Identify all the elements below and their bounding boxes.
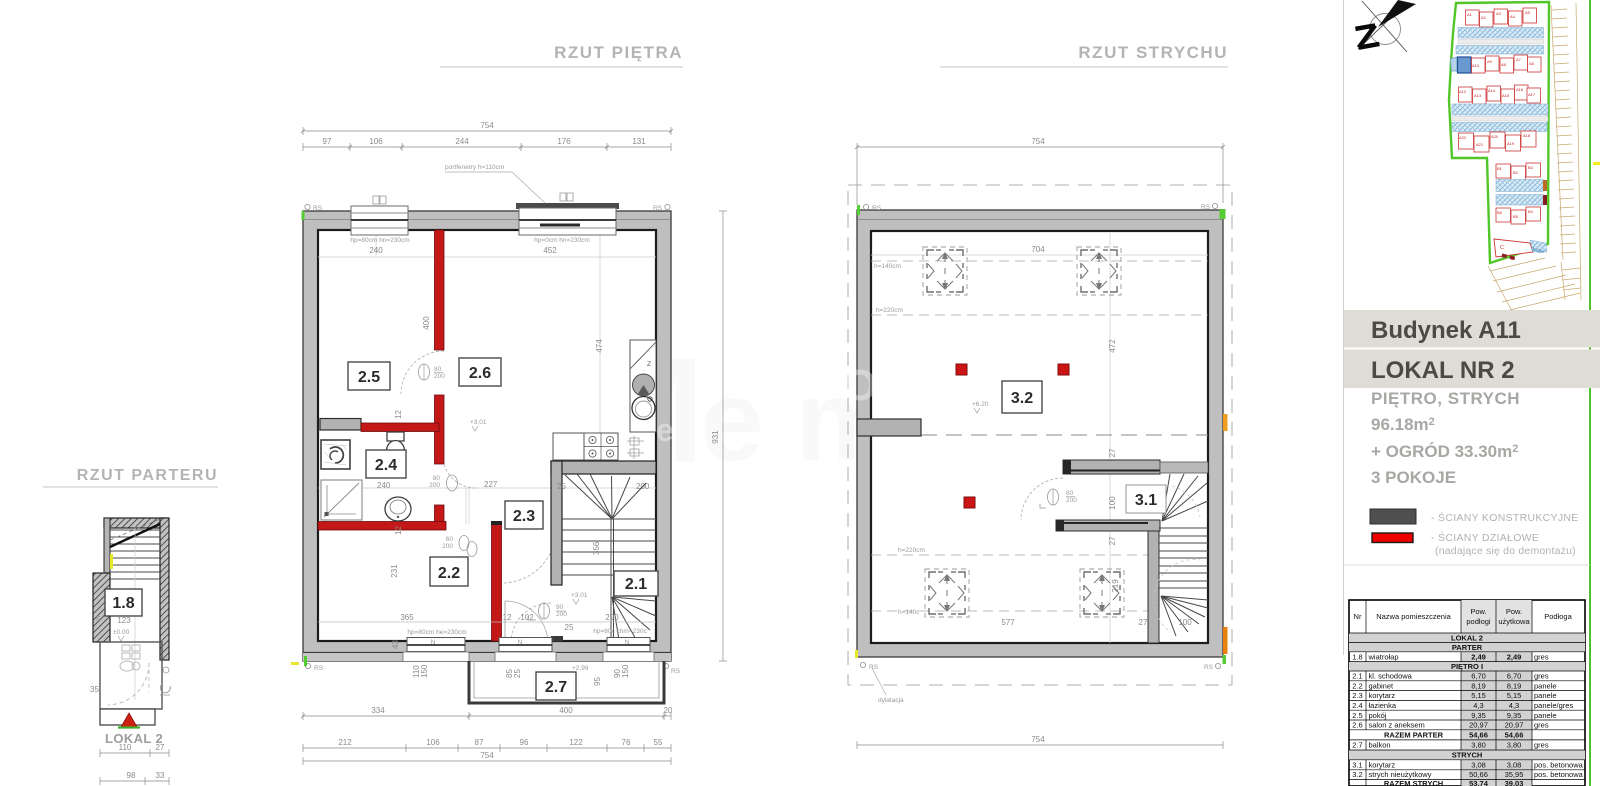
svg-text:90: 90 (556, 604, 564, 611)
svg-text:Pow.: Pow. (1506, 607, 1522, 616)
svg-text:panele: panele (1534, 691, 1557, 700)
svg-text:h=140c: h=140c (898, 609, 920, 616)
svg-text:+2.99: +2.99 (572, 665, 589, 672)
svg-text:356: 356 (592, 541, 601, 555)
svg-text:(nadające się do demontażu): (nadające się do demontażu) (1435, 545, 1576, 557)
svg-text:RZUT PARTERU: RZUT PARTERU (77, 467, 218, 484)
svg-text:e: e (656, 412, 674, 448)
svg-text:4,3: 4,3 (1473, 701, 1483, 710)
svg-text:PIĘTRO, STRYCH: PIĘTRO, STRYCH (1371, 389, 1520, 408)
svg-text:RS: RS (1204, 664, 1214, 671)
svg-text:2.1: 2.1 (625, 576, 647, 593)
svg-text:B5: B5 (1513, 214, 1519, 219)
svg-text:9,35: 9,35 (1507, 711, 1522, 720)
svg-text:27: 27 (156, 743, 165, 752)
svg-text:PARTER: PARTER (1452, 643, 1483, 652)
svg-text:4,3: 4,3 (1509, 701, 1519, 710)
svg-text:80: 80 (1066, 490, 1074, 497)
svg-text:A15: A15 (1502, 93, 1510, 98)
svg-text:N: N (625, 639, 630, 646)
svg-text:6,70: 6,70 (1471, 672, 1486, 681)
svg-text:2.4: 2.4 (375, 457, 397, 474)
svg-text:3 POKOJE: 3 POKOJE (1371, 468, 1456, 487)
svg-text:334: 334 (371, 706, 385, 715)
svg-text:200: 200 (429, 482, 440, 489)
svg-text:RS: RS (869, 664, 879, 671)
svg-text:+ OGRÓD 33.30m2: + OGRÓD 33.30m2 (1371, 442, 1518, 461)
svg-text:RS: RS (872, 205, 882, 212)
svg-text:87: 87 (475, 738, 484, 747)
svg-text:RAZEM PARTER: RAZEM PARTER (1384, 731, 1444, 740)
svg-text:3.2: 3.2 (1011, 390, 1033, 407)
svg-text:3.1: 3.1 (1135, 492, 1157, 509)
svg-text:A16: A16 (1516, 87, 1524, 92)
svg-text:2.2: 2.2 (438, 565, 460, 582)
svg-text:25: 25 (565, 623, 574, 632)
svg-text:RS: RS (653, 205, 663, 212)
svg-text:2.3: 2.3 (1352, 691, 1362, 700)
svg-text:Pow.: Pow. (1470, 607, 1486, 616)
svg-text:A22: A22 (1459, 135, 1467, 140)
svg-text:A21: A21 (1476, 142, 1484, 147)
svg-text:A13: A13 (1474, 93, 1482, 98)
svg-text:12: 12 (394, 526, 403, 535)
svg-text:A18: A18 (1523, 133, 1531, 138)
svg-text:3.1: 3.1 (1352, 760, 1362, 769)
svg-text:A1: A1 (1467, 12, 1473, 17)
svg-text:- ŚCIANY DZIAŁOWE: - ŚCIANY DZIAŁOWE (1431, 531, 1539, 544)
svg-text:123: 123 (117, 616, 131, 625)
svg-text:200: 200 (442, 543, 453, 550)
svg-text:RZUT STRYCHU: RZUT STRYCHU (1078, 43, 1228, 62)
svg-text:240: 240 (377, 481, 391, 490)
svg-text:korytarz: korytarz (1369, 691, 1396, 700)
svg-text:e: e (700, 357, 764, 485)
svg-text:Nr: Nr (1354, 612, 1362, 621)
svg-text:PIĘTRO I: PIĘTRO I (1451, 662, 1483, 671)
svg-text:754: 754 (1031, 735, 1045, 744)
svg-text:korytarz: korytarz (1369, 760, 1396, 769)
svg-text:Podłoga: Podłoga (1544, 612, 1572, 621)
svg-text:pos. betonowa: pos. betonowa (1534, 760, 1584, 769)
svg-text:RS: RS (671, 668, 681, 675)
svg-text:200: 200 (556, 611, 567, 618)
svg-text:1.8: 1.8 (112, 595, 134, 612)
svg-text:3,08: 3,08 (1507, 760, 1522, 769)
svg-text:STRYCH: STRYCH (1452, 751, 1483, 760)
svg-text:podłogi: podłogi (1466, 617, 1491, 626)
svg-text:gres: gres (1534, 672, 1549, 681)
svg-text:25: 25 (557, 482, 566, 491)
svg-text:użytkowa: użytkowa (1498, 617, 1530, 626)
svg-text:RAZEM STRYCH: RAZEM STRYCH (1384, 779, 1443, 786)
svg-text:754: 754 (480, 751, 494, 760)
svg-text:2.7: 2.7 (1352, 741, 1362, 750)
svg-text:gabinet: gabinet (1369, 681, 1395, 690)
svg-text:54,66: 54,66 (1469, 731, 1488, 740)
svg-text:strych nieużytkowy: strych nieużytkowy (1369, 770, 1432, 779)
svg-text:231: 231 (390, 564, 399, 578)
svg-text:A7: A7 (1516, 57, 1522, 62)
svg-text:106: 106 (369, 137, 383, 146)
svg-text:27: 27 (1108, 448, 1117, 457)
svg-text:Budynek A11: Budynek A11 (1371, 317, 1521, 344)
svg-text:102: 102 (520, 613, 534, 622)
svg-text:salon z aneksem: salon z aneksem (1369, 721, 1425, 730)
svg-text:1.8: 1.8 (1352, 652, 1362, 661)
svg-text:±0.00: ±0.00 (113, 629, 130, 636)
svg-text:20,97: 20,97 (1469, 721, 1488, 730)
svg-text:219: 219 (1111, 579, 1120, 593)
svg-text:55: 55 (654, 738, 663, 747)
svg-text:A8: A8 (1501, 62, 1507, 67)
svg-text:B1: B1 (1497, 166, 1503, 171)
svg-text:5: 5 (96, 615, 101, 624)
svg-text:131: 131 (632, 137, 646, 146)
svg-text:2.6: 2.6 (469, 365, 491, 382)
svg-text:365: 365 (400, 613, 414, 622)
svg-text:panele: panele (1534, 711, 1557, 720)
svg-text:35,95: 35,95 (1505, 770, 1524, 779)
svg-text:LOKAL 2: LOKAL 2 (1451, 634, 1483, 643)
svg-text:hp=80c chm=230c: hp=80c chm=230c (593, 628, 647, 635)
svg-text:931: 931 (711, 430, 720, 444)
svg-text:2.1: 2.1 (1352, 672, 1362, 681)
svg-text:hp=80cm he=230cm: hp=80cm he=230cm (407, 629, 466, 636)
svg-text:150: 150 (621, 664, 630, 678)
svg-text:39,03: 39,03 (1505, 779, 1524, 786)
svg-text:RS: RS (314, 665, 324, 672)
svg-text:212: 212 (338, 738, 352, 747)
svg-text:12: 12 (394, 410, 403, 419)
svg-text:27: 27 (1108, 536, 1117, 545)
svg-text:RS: RS (313, 205, 323, 212)
svg-text:A19: A19 (1507, 141, 1515, 146)
svg-text:gres: gres (1534, 741, 1549, 750)
svg-text:176: 176 (557, 137, 571, 146)
svg-text:80: 80 (433, 475, 441, 482)
svg-text:2.5: 2.5 (1352, 711, 1362, 720)
svg-text:A14: A14 (1488, 88, 1496, 93)
svg-text:53,74: 53,74 (1469, 779, 1489, 786)
svg-text:+6.20: +6.20 (972, 401, 989, 408)
svg-text:kl. schodowa: kl. schodowa (1369, 672, 1413, 681)
svg-text:RS: RS (1201, 204, 1211, 211)
svg-text:2,49: 2,49 (1471, 652, 1486, 661)
svg-text:43: 43 (391, 640, 400, 649)
svg-text:O: O (843, 361, 877, 410)
svg-text:754: 754 (1031, 137, 1045, 146)
svg-text:3,80: 3,80 (1507, 741, 1522, 750)
svg-text:577: 577 (1001, 618, 1015, 627)
svg-text:panele: panele (1534, 681, 1557, 690)
svg-text:A12: A12 (1459, 89, 1467, 94)
svg-text:h=140cm: h=140cm (874, 263, 901, 270)
svg-text:60: 60 (446, 536, 454, 543)
svg-text:20: 20 (664, 706, 673, 715)
svg-text:3,08: 3,08 (1471, 760, 1486, 769)
svg-text:portfenetry h=110cm: portfenetry h=110cm (445, 164, 504, 171)
svg-text:dylatacja: dylatacja (878, 697, 904, 704)
svg-text:98: 98 (127, 771, 136, 780)
svg-text:A6: A6 (1529, 61, 1535, 66)
svg-text:200: 200 (434, 373, 445, 380)
svg-text:Z: Z (647, 361, 651, 368)
svg-text:122: 122 (569, 738, 583, 747)
svg-text:A20: A20 (1491, 134, 1499, 139)
svg-text:33: 33 (156, 771, 165, 780)
svg-text:A9: A9 (1487, 59, 1493, 64)
svg-text:N: N (431, 639, 436, 646)
svg-text:2.6: 2.6 (1352, 721, 1362, 730)
svg-text:452: 452 (543, 246, 557, 255)
svg-text:244: 244 (455, 137, 469, 146)
svg-text:łazienka: łazienka (1369, 701, 1397, 710)
svg-text:2.4: 2.4 (1352, 701, 1362, 710)
svg-text:2.5: 2.5 (358, 369, 380, 386)
svg-text:gres: gres (1534, 721, 1549, 730)
svg-text:- ŚCIANY KONSTRUKCYJNE: - ŚCIANY KONSTRUKCYJNE (1431, 511, 1579, 524)
svg-text:A17: A17 (1528, 92, 1536, 97)
svg-text:96: 96 (520, 738, 529, 747)
svg-text:h=220cm: h=220cm (876, 307, 903, 314)
svg-text:pokój: pokój (1369, 711, 1387, 720)
svg-text:hp=80cm hn=230cm: hp=80cm hn=230cm (350, 237, 409, 244)
svg-text:wiatrołap: wiatrołap (1368, 652, 1399, 661)
svg-text:110: 110 (119, 743, 132, 752)
svg-text:B6: B6 (1497, 210, 1503, 215)
svg-text:97: 97 (323, 137, 332, 146)
svg-text:panele/gres: panele/gres (1534, 701, 1573, 710)
svg-text:240: 240 (369, 246, 383, 255)
svg-text:9,35: 9,35 (1471, 711, 1486, 720)
svg-text:35: 35 (90, 685, 99, 694)
svg-text:hp=0cm hn=230cm: hp=0cm hn=230cm (534, 237, 590, 244)
svg-text:B4: B4 (1528, 209, 1534, 214)
svg-text:100: 100 (1178, 618, 1192, 627)
svg-text:pos. betonowa: pos. betonowa (1534, 770, 1584, 779)
svg-text:150: 150 (420, 664, 429, 678)
svg-text:472: 472 (1108, 339, 1117, 353)
svg-text:LOKAL NR 2: LOKAL NR 2 (1371, 357, 1515, 384)
svg-text:8,19: 8,19 (1471, 681, 1486, 690)
svg-text:290: 290 (605, 613, 619, 622)
svg-text:h=220cm: h=220cm (898, 547, 925, 554)
svg-text:Nazwa pomieszczenia: Nazwa pomieszczenia (1376, 612, 1451, 621)
svg-text:balkon: balkon (1369, 741, 1391, 750)
svg-text:754: 754 (480, 121, 494, 130)
svg-text:A3: A3 (1496, 11, 1502, 16)
svg-text:96.18m2: 96.18m2 (1371, 415, 1435, 434)
svg-text:106: 106 (426, 738, 440, 747)
svg-text:27: 27 (1139, 618, 1148, 627)
svg-text:227: 227 (484, 480, 498, 489)
svg-text:2.7: 2.7 (545, 679, 567, 696)
svg-text:3.2: 3.2 (1352, 770, 1362, 779)
svg-text:5,15: 5,15 (1507, 691, 1522, 700)
svg-text:2,49: 2,49 (1507, 652, 1522, 661)
svg-text:5,15: 5,15 (1471, 691, 1486, 700)
svg-text:N: N (518, 639, 523, 646)
svg-text:474: 474 (595, 339, 604, 353)
svg-text:3,80: 3,80 (1471, 741, 1486, 750)
svg-text:A10: A10 (1472, 63, 1480, 68)
svg-text:25: 25 (513, 669, 522, 678)
svg-text:80: 80 (434, 366, 442, 373)
svg-text:C: C (1500, 245, 1504, 251)
svg-text:LOKAL 2: LOKAL 2 (105, 731, 163, 746)
svg-text:2.2: 2.2 (1352, 681, 1362, 690)
svg-text:A5: A5 (1525, 10, 1531, 15)
svg-text:200: 200 (1066, 497, 1077, 504)
svg-text:8,19: 8,19 (1507, 681, 1522, 690)
svg-text:gres: gres (1534, 652, 1549, 661)
svg-text:95: 95 (593, 677, 602, 686)
svg-text:12: 12 (503, 613, 512, 622)
svg-text:100: 100 (1108, 496, 1117, 510)
svg-text:+3.01: +3.01 (571, 592, 588, 599)
svg-text:6,70: 6,70 (1507, 672, 1522, 681)
svg-text:RZUT PIĘTRA: RZUT PIĘTRA (554, 43, 683, 62)
svg-text:400: 400 (559, 706, 573, 715)
svg-text:A4: A4 (1510, 14, 1516, 19)
svg-text:20,97: 20,97 (1505, 721, 1524, 730)
svg-text:A2: A2 (1481, 15, 1487, 20)
svg-text:76: 76 (622, 738, 631, 747)
svg-text:400: 400 (422, 316, 431, 330)
svg-text:B3: B3 (1528, 165, 1534, 170)
svg-text:2.3: 2.3 (513, 508, 535, 525)
svg-text:50,66: 50,66 (1469, 770, 1488, 779)
svg-text:B2: B2 (1513, 170, 1519, 175)
svg-text:54,66: 54,66 (1505, 731, 1524, 740)
svg-text:704: 704 (1031, 245, 1045, 254)
svg-text:+3.01: +3.01 (470, 419, 487, 426)
